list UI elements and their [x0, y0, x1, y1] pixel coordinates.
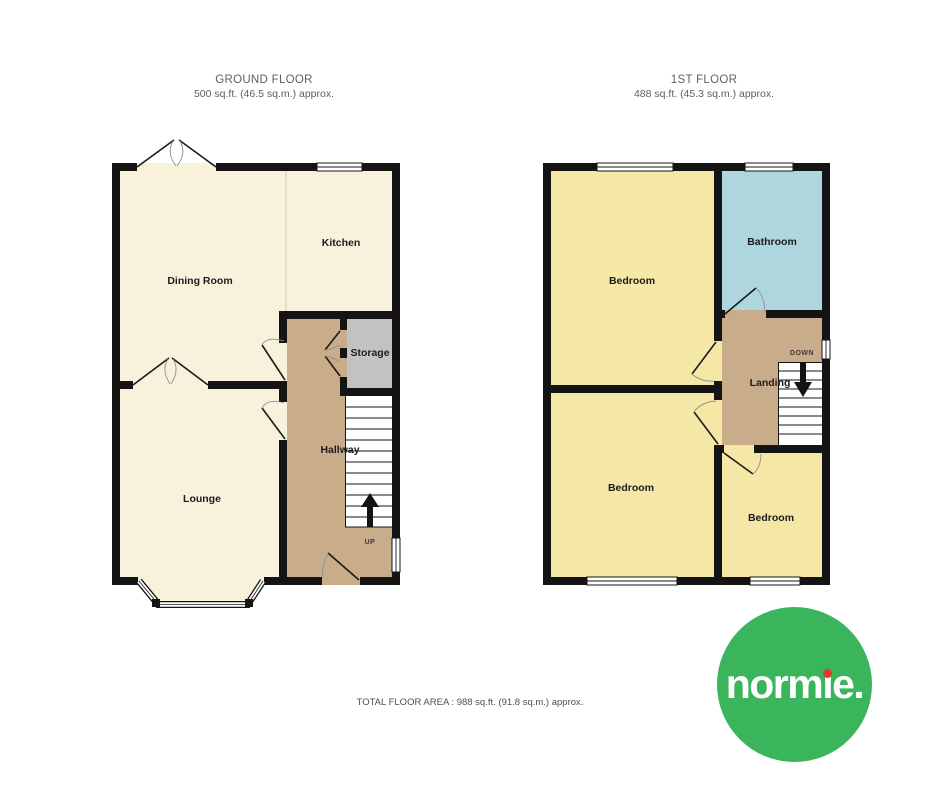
ff-landing-side-window	[822, 340, 830, 359]
ground-floor-plan: Dining Room Kitchen Storage Hallway Loun…	[112, 140, 400, 607]
ff-label-bedroom-rear: Bedroom	[608, 482, 654, 494]
gf-label-kitchen: Kitchen	[322, 237, 361, 249]
gf-kitchen-hall-wall	[279, 311, 400, 319]
ff-bedroom-divider-wall	[543, 385, 721, 393]
gf-patio-opening	[137, 163, 216, 171]
logo-i-dot	[823, 669, 832, 678]
ff-bathroom-window	[745, 163, 793, 171]
normie-logo-text: normıe.	[726, 664, 864, 705]
gf-label-storage: Storage	[350, 347, 389, 359]
ff-label-bathroom: Bathroom	[747, 236, 797, 248]
gf-kitchen-window	[317, 163, 362, 171]
ff-bedroom-rear-window	[587, 577, 677, 585]
gf-dining-door-opening	[279, 343, 287, 381]
gf-bay-opening	[138, 577, 264, 585]
ff-bedroom-front-window	[597, 163, 673, 171]
gf-label-lounge: Lounge	[183, 493, 221, 505]
ff-bedroom-small-door-opening	[724, 445, 754, 453]
first-floor-plan: Bedroom Bathroom Landing Bedroom Bedroom…	[543, 163, 830, 585]
normie-logo: normıe.	[717, 607, 872, 762]
logo-text-end: e.	[832, 661, 863, 707]
gf-storage-door-opening-bottom	[340, 358, 347, 377]
gf-label-dining-room: Dining Room	[167, 275, 232, 287]
gf-label-up: UP	[365, 539, 376, 546]
gf-dining-lounge-opening	[133, 381, 208, 389]
gf-front-door-opening	[322, 577, 360, 585]
gf-storage-door-opening-top	[340, 330, 347, 348]
gf-lounge-door-opening	[279, 402, 287, 440]
ff-bedroom-rear-door-opening	[714, 400, 722, 445]
logo-letter-i: ı	[822, 664, 832, 705]
gf-patio-doors	[137, 140, 216, 167]
ff-bedroom-front-door-opening	[714, 341, 722, 381]
gf-label-hallway: Hallway	[320, 444, 359, 456]
gf-hallway-side-window	[392, 538, 400, 572]
ff-label-bedroom-small: Bedroom	[748, 512, 794, 524]
floorplan-canvas: GROUND FLOOR 500 sq.ft. (46.5 sq.m.) app…	[0, 0, 940, 788]
logo-text-start: norm	[726, 661, 823, 707]
gf-storage-bottom-wall	[340, 388, 392, 396]
ff-label-down: DOWN	[790, 350, 814, 357]
ff-bedroom-small-window	[750, 577, 800, 585]
ff-label-landing: Landing	[750, 377, 791, 389]
ff-label-bedroom-front: Bedroom	[609, 275, 655, 287]
gf-lounge-floor	[120, 389, 279, 577]
ff-bathroom-door-opening	[725, 310, 766, 318]
